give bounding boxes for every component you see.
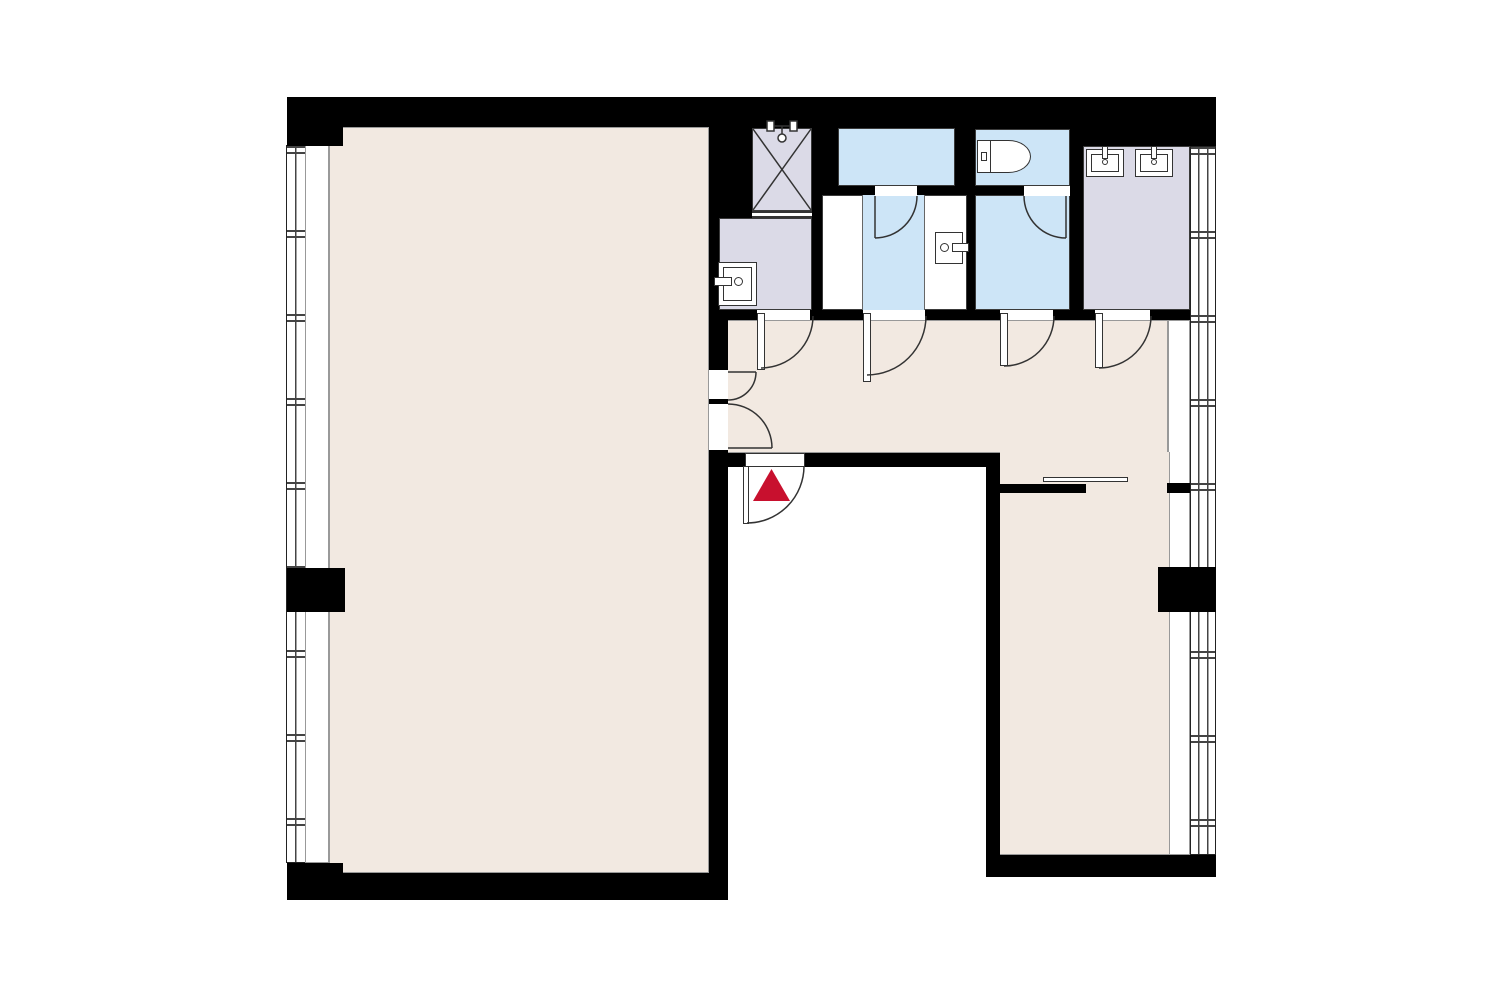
vanity-sink-1-spout: [1102, 159, 1108, 165]
wall-corner-bottom-left: [287, 863, 343, 900]
opening-bath-anteroom: [875, 186, 917, 196]
washbasin-anteroom-drain: [940, 243, 949, 252]
opening-double-door-a: [709, 370, 728, 399]
bath-anteroom-wet-zone: [862, 195, 925, 310]
toilet-flush-button: [981, 152, 987, 161]
wall-right-wing-bottom: [986, 855, 1216, 877]
washbasin-anteroom-faucet: [952, 243, 969, 252]
wall-corner-top-left: [287, 97, 343, 146]
opening-corridor-4: [1095, 310, 1150, 320]
opening-corridor-2: [863, 310, 925, 320]
wall-left-lower: [709, 450, 728, 900]
vanity-sink-2-faucet: [1151, 146, 1157, 159]
washbasin-utility-drain: [734, 277, 743, 286]
wall-corridor-bottom-left: [709, 453, 745, 467]
wall-corridor-bottom-right: [805, 453, 1000, 467]
entrance-opening: [745, 453, 805, 467]
door-leaf-corridor-1: [757, 313, 765, 370]
room-main: [329, 127, 709, 873]
column-left: [287, 568, 345, 612]
window-band-left: [286, 145, 306, 863]
vanity-sink-2-spout: [1151, 159, 1157, 165]
stub-wall-right-room: [998, 484, 1086, 493]
room-shower: [752, 128, 812, 211]
wall-left-upper: [709, 320, 728, 370]
door-leaf-corridor-4: [1095, 313, 1103, 368]
inner-strip-left: [305, 145, 329, 863]
opening-wc: [1024, 186, 1070, 196]
vanity-sink-1-faucet: [1102, 146, 1108, 159]
door-leaf-entrance: [743, 466, 749, 524]
shower-threshold: [752, 211, 812, 218]
sliding-door-panel: [1043, 477, 1128, 482]
door-leaf-corridor-3: [1000, 313, 1008, 366]
room-wc-anteroom: [975, 195, 1070, 310]
entrance-marker-triangle: [753, 469, 790, 501]
room-bathtub: [838, 128, 955, 186]
wall-left-wing-bottom: [287, 873, 728, 900]
window-band-right: [1190, 146, 1216, 855]
door-leaf-corridor-2: [863, 313, 871, 382]
room-right: [999, 452, 1170, 855]
floor-plan-canvas: [0, 0, 1500, 1000]
column-right: [1158, 567, 1216, 612]
stub-wall-window-side: [1167, 483, 1190, 493]
washbasin-utility-faucet: [714, 277, 732, 286]
opening-double-door-b: [709, 404, 728, 450]
wall-courtyard-right: [986, 467, 1000, 877]
wall-top-left: [287, 97, 709, 127]
